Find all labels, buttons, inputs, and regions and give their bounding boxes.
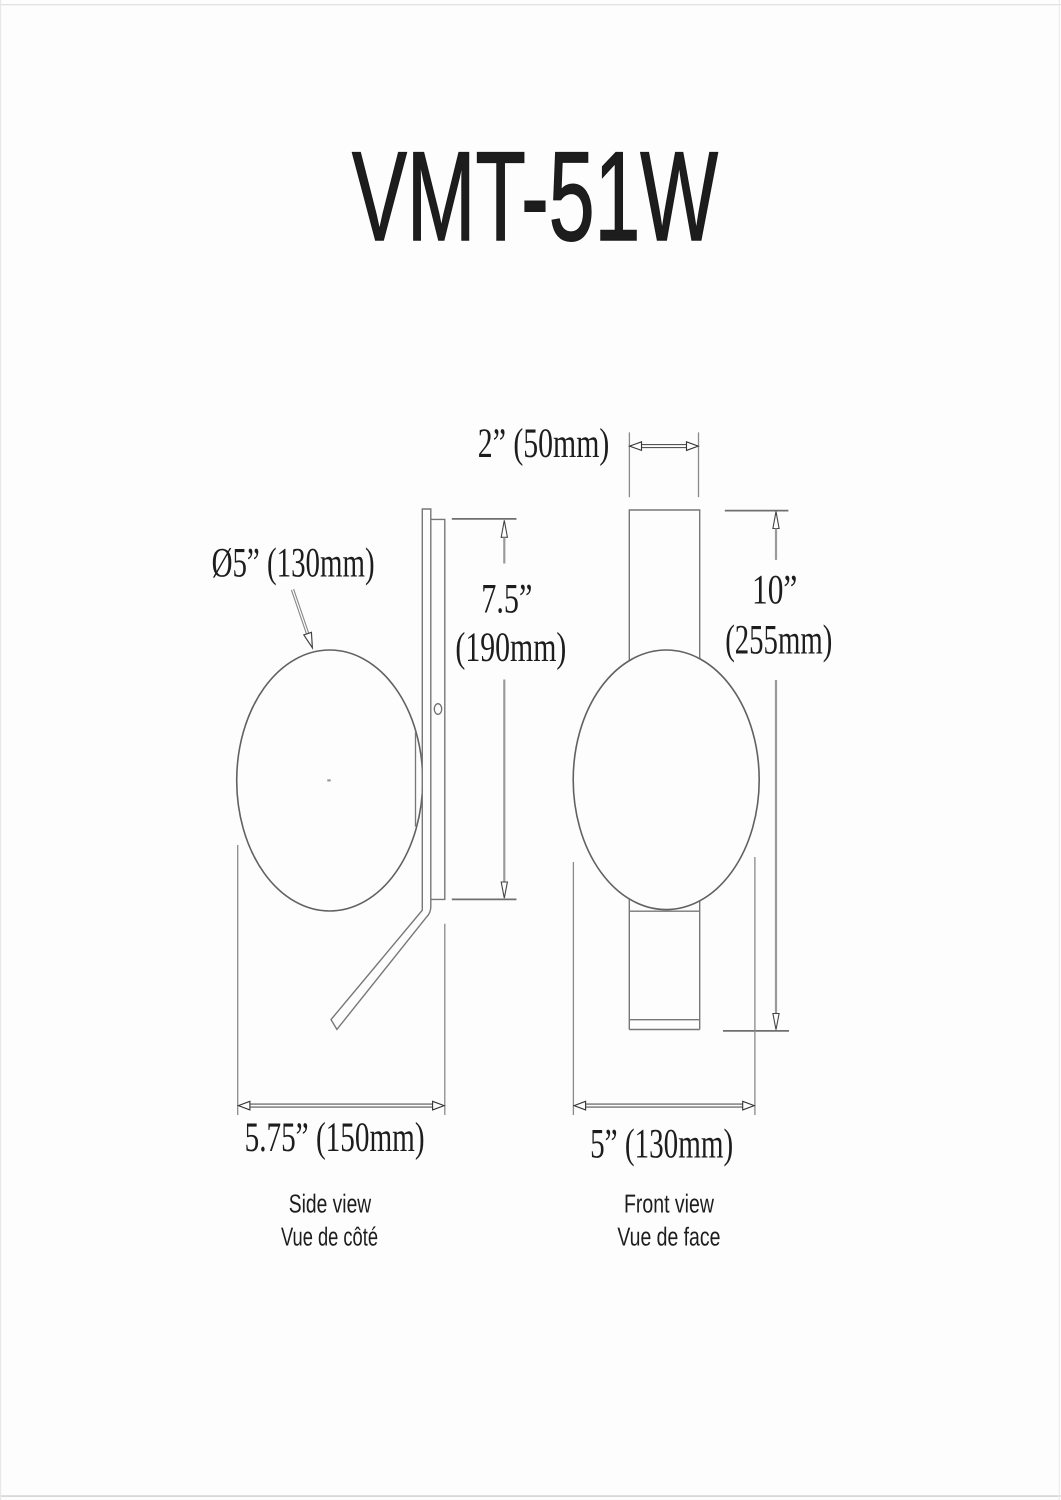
svg-text:(255mm): (255mm) (725, 618, 832, 664)
svg-text:Ø5” (130mm): Ø5” (130mm) (212, 541, 375, 587)
svg-text:2” (50mm): 2” (50mm) (478, 421, 610, 467)
svg-text:7.5”: 7.5” (481, 576, 532, 622)
svg-text:Front view: Front view (624, 1189, 714, 1219)
svg-text:Side view: Side view (289, 1189, 372, 1219)
svg-text:10”: 10” (752, 568, 797, 614)
svg-text:(190mm): (190mm) (455, 625, 566, 671)
svg-text:Vue de face: Vue de face (617, 1222, 720, 1252)
svg-text:Vue de côté: Vue de côté (281, 1222, 378, 1252)
svg-text:VMT-51W: VMT-51W (352, 125, 718, 267)
svg-text:5” (130mm): 5” (130mm) (590, 1122, 733, 1168)
svg-text:5.75” (150mm): 5.75” (150mm) (245, 1115, 425, 1161)
